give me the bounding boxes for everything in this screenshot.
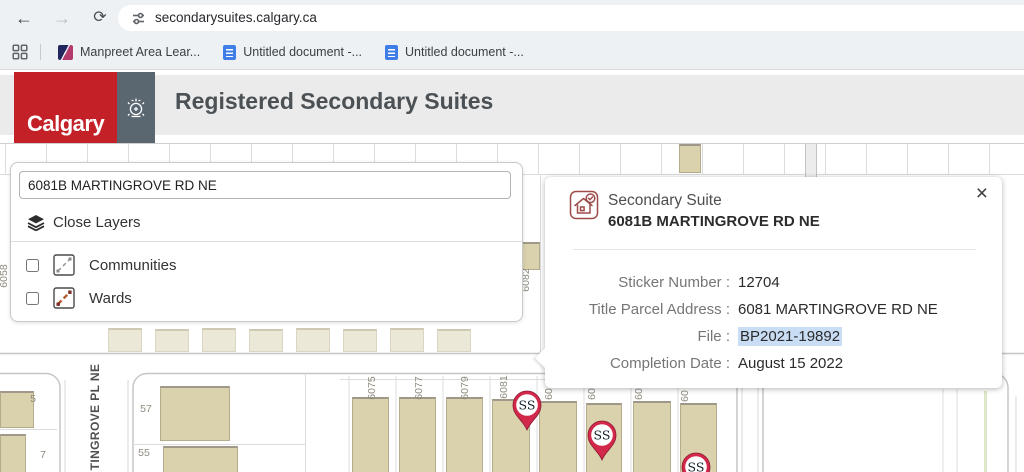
field-label: Sticker Number : xyxy=(545,274,730,291)
communities-layer-icon xyxy=(53,254,75,276)
layers-toggle-label: Close Layers xyxy=(53,214,141,231)
building xyxy=(539,401,577,472)
address-bar[interactable]: secondarysuites.calgary.ca xyxy=(118,5,1024,31)
url-text[interactable]: secondarysuites.calgary.ca xyxy=(155,5,317,31)
parcel-label: 57 xyxy=(129,403,163,415)
parcel-label: 6077 xyxy=(413,371,425,405)
bookmark-label: Manpreet Area Lear... xyxy=(80,45,200,59)
building xyxy=(108,328,142,352)
building xyxy=(633,401,671,472)
layer-item-communities: Communities xyxy=(26,251,177,279)
parcel-label: 6081 xyxy=(498,370,510,404)
field-row-sticker-number: Sticker Number : 12704 xyxy=(545,269,1002,296)
parcel-label: 6079 xyxy=(459,371,471,405)
building xyxy=(679,144,701,173)
popup-fields: Sticker Number : 12704 Title Parcel Addr… xyxy=(545,269,1002,377)
building xyxy=(155,329,189,352)
calgary-logo-red: Calgary xyxy=(14,72,117,143)
building xyxy=(437,329,471,352)
popup-divider xyxy=(573,249,976,250)
parcel-label: 6075 xyxy=(366,371,378,405)
field-value: August 15 2022 xyxy=(738,355,1002,372)
field-row-file: File : BP2021-19892 xyxy=(545,323,1002,350)
forward-button[interactable]: → xyxy=(48,4,76,32)
building xyxy=(160,386,230,441)
screen: ← → ⟳ secondarysuites.calgary.ca xyxy=(0,0,1024,472)
field-value: 12704 xyxy=(738,274,1002,291)
ss-marker[interactable]: SS xyxy=(511,390,543,432)
layers-icon xyxy=(27,214,45,231)
field-label: Title Parcel Address : xyxy=(545,301,730,318)
field-value-highlighted: BP2021-19892 xyxy=(738,328,1002,345)
close-icon[interactable]: × xyxy=(976,182,988,206)
bookmark-untitled-doc-2[interactable]: Untitled document -... xyxy=(385,45,524,60)
building xyxy=(352,397,389,472)
bookmark-untitled-doc-1[interactable]: Untitled document -... xyxy=(223,45,362,60)
building xyxy=(446,397,483,472)
field-row-title-parcel-address: Title Parcel Address : 6081 MARTINGROVE … xyxy=(545,296,1002,323)
parcel-label: 6058 xyxy=(0,259,10,293)
site-settings-icon[interactable] xyxy=(131,11,146,31)
search-layers-panel: Close Layers Communities xyxy=(10,162,523,322)
browser-chrome: ← → ⟳ secondarysuites.calgary.ca xyxy=(0,0,1024,70)
building xyxy=(296,328,330,352)
wards-label: Wards xyxy=(89,290,132,307)
ss-marker[interactable]: SS xyxy=(586,420,618,462)
communities-label: Communities xyxy=(89,257,177,274)
building xyxy=(163,446,238,472)
bookmarks-bar: Manpreet Area Lear... Untitled document … xyxy=(0,36,1024,68)
bookmark-label: Untitled document -... xyxy=(405,45,524,59)
docs-icon xyxy=(223,45,236,60)
field-label: File : xyxy=(545,328,730,345)
svg-text:SS: SS xyxy=(594,428,611,443)
building xyxy=(343,329,377,352)
bookmark-favicon xyxy=(58,45,73,60)
pathway-line xyxy=(984,391,987,472)
back-button[interactable]: ← xyxy=(10,4,38,32)
field-row-completion-date: Completion Date : August 15 2022 xyxy=(545,350,1002,377)
field-value: 6081 MARTINGROVE RD NE xyxy=(738,301,1002,318)
street-name-label: TINGROVE PL NE xyxy=(88,337,102,472)
popup-category: Secondary Suite xyxy=(608,192,722,210)
calgary-crest xyxy=(117,72,155,143)
bookmark-manpreet[interactable]: Manpreet Area Lear... xyxy=(58,45,200,60)
page-title: Registered Secondary Suites xyxy=(175,88,493,115)
layers-toggle[interactable]: Close Layers xyxy=(27,209,141,235)
parcel-label: 5 xyxy=(16,393,50,405)
bookmarks-separator xyxy=(40,44,41,60)
calgary-logo: Calgary xyxy=(14,72,155,143)
building xyxy=(399,397,436,472)
building xyxy=(0,434,26,472)
address-search-input[interactable] xyxy=(19,171,511,199)
communities-checkbox[interactable] xyxy=(26,259,39,272)
browser-toolbar: ← → ⟳ secondarysuites.calgary.ca xyxy=(0,0,1024,36)
crest-icon xyxy=(125,96,147,120)
parcel-label: 55 xyxy=(127,447,161,459)
svg-text:SS: SS xyxy=(519,398,536,413)
building xyxy=(249,329,283,352)
wards-layer-icon xyxy=(53,287,75,309)
secondary-suite-icon xyxy=(569,190,599,225)
building xyxy=(202,328,236,352)
bookmark-label: Untitled document -... xyxy=(243,45,362,59)
ss-marker[interactable]: SS xyxy=(680,452,712,472)
field-label: Completion Date : xyxy=(545,355,730,372)
suite-info-popup: × Secondary Suite 6081B MARTINGROVE RD N… xyxy=(545,177,1002,388)
panel-divider xyxy=(11,241,522,242)
building xyxy=(390,328,424,352)
svg-text:SS: SS xyxy=(688,460,705,472)
reload-button[interactable]: ⟳ xyxy=(86,4,114,32)
docs-icon xyxy=(385,45,398,60)
parcel-label: 7 xyxy=(26,449,60,461)
layer-item-wards: Wards xyxy=(26,284,132,312)
calgary-logo-text: Calgary xyxy=(27,111,104,137)
popup-address-title: 6081B MARTINGROVE RD NE xyxy=(608,213,820,230)
apps-grid-icon[interactable] xyxy=(12,44,28,60)
wards-checkbox[interactable] xyxy=(26,292,39,305)
